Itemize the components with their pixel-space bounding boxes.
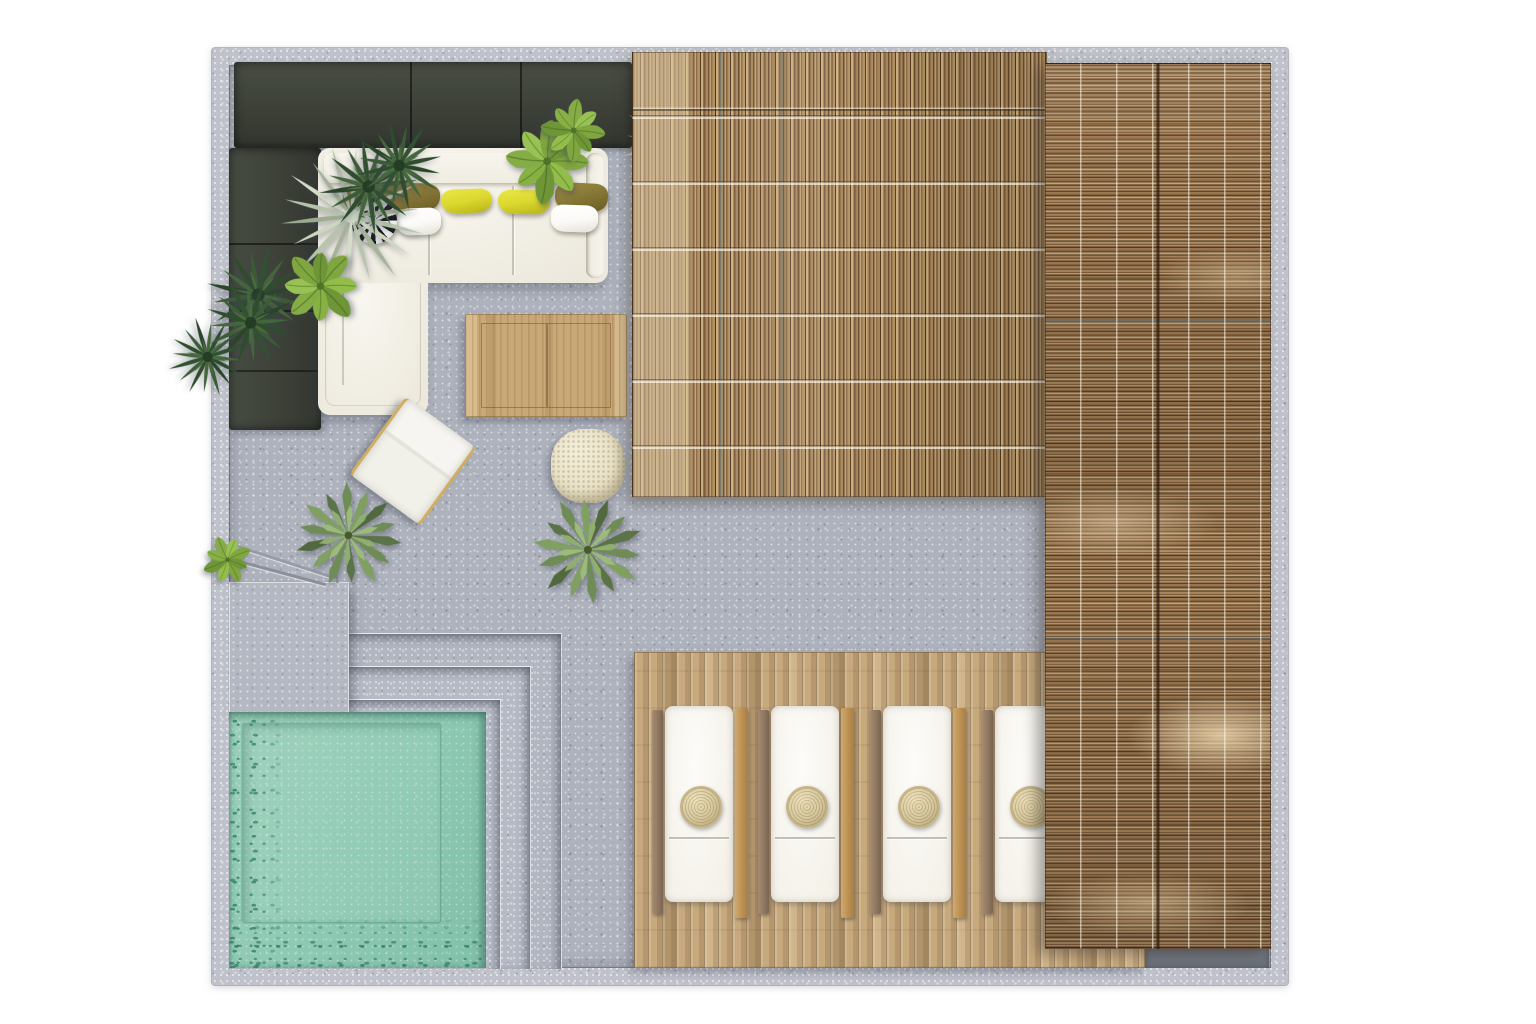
reed-canopy-top [632, 52, 1047, 497]
round-rattan-pillow [898, 786, 940, 828]
lounger-rail-left [758, 710, 769, 914]
round-rattan-pillow [680, 786, 722, 828]
lounger-cushion [665, 706, 733, 902]
sun-lounger [652, 704, 748, 918]
lounger-cushion [771, 706, 839, 902]
reed-canopy-right [1045, 63, 1271, 949]
lounger-rail-right [735, 708, 748, 918]
lounger-cushion [883, 706, 951, 902]
lounger-seam [775, 837, 835, 839]
lounger-rail-right [841, 708, 854, 918]
sun-lounger [870, 704, 966, 918]
lounger-rail-left [870, 710, 881, 914]
lounger-seam [887, 837, 947, 839]
lounger-rail-left [982, 710, 993, 914]
round-rattan-pillow [786, 786, 828, 828]
lounger-rail-left [652, 710, 663, 914]
lounger-seam [669, 837, 729, 839]
sun-lounger [758, 704, 854, 918]
terrace-plan-render [0, 0, 1536, 1024]
lounger-rail-right [953, 708, 966, 918]
perimeter-wall [212, 48, 1288, 985]
